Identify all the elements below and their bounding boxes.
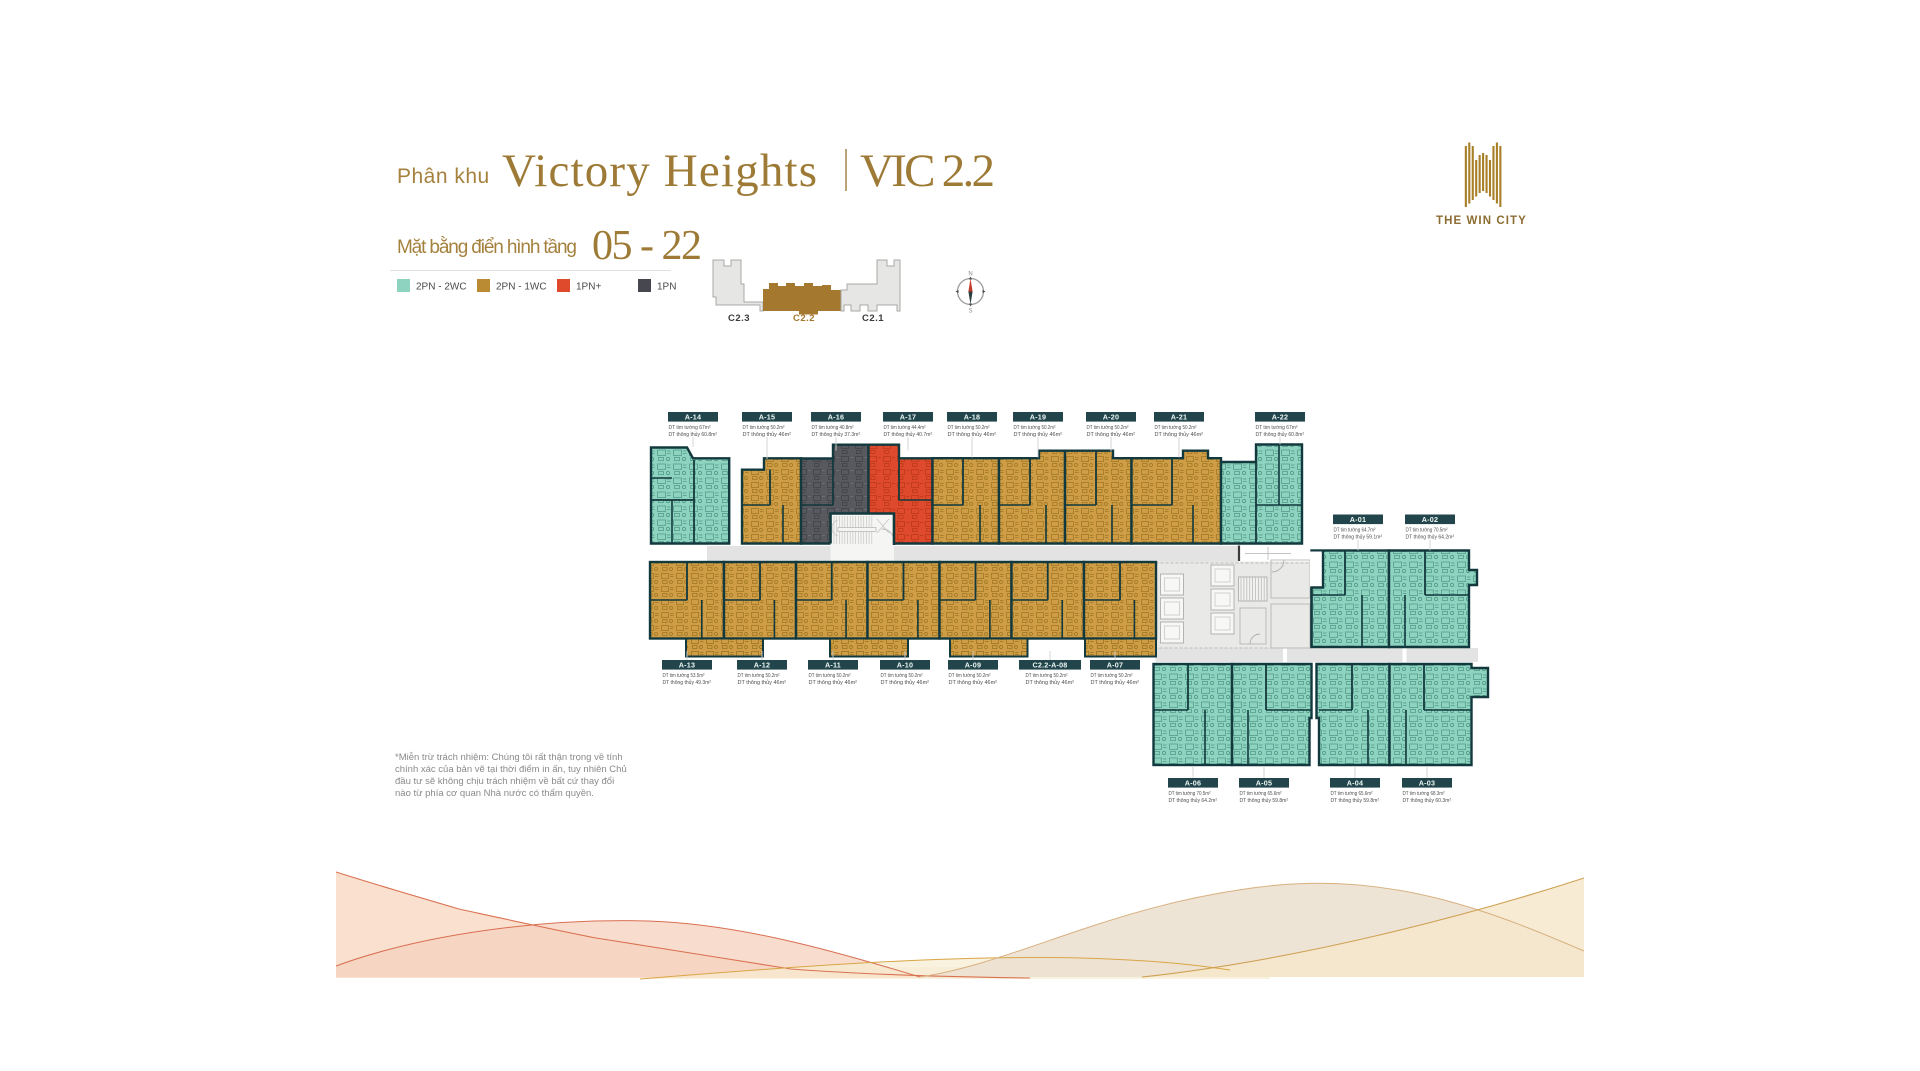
svg-text:Victory Heights: Victory Heights bbox=[502, 145, 817, 197]
svg-text:A-03: A-03 bbox=[1419, 778, 1435, 787]
svg-text:A-05: A-05 bbox=[1256, 778, 1272, 787]
svg-text:DT thông thủy 60.8m²: DT thông thủy 60.8m² bbox=[1256, 431, 1305, 438]
svg-text:DT tim tường 40.8m²: DT tim tường 40.8m² bbox=[812, 425, 854, 431]
svg-text:A-13: A-13 bbox=[679, 660, 695, 669]
svg-text:A-16: A-16 bbox=[828, 412, 844, 421]
svg-text:DT thông thủy 46m²: DT thông thủy 46m² bbox=[1026, 679, 1075, 686]
svg-text:A-11: A-11 bbox=[825, 660, 841, 669]
svg-text:2PN - 1WC: 2PN - 1WC bbox=[496, 282, 547, 293]
svg-text:DT thông thủy 46m²: DT thông thủy 46m² bbox=[1091, 679, 1140, 686]
svg-text:DT thông thủy 40.7m²: DT thông thủy 40.7m² bbox=[884, 431, 933, 438]
svg-text:DT thông thủy 46m²: DT thông thủy 46m² bbox=[1155, 431, 1204, 438]
svg-text:1PN+: 1PN+ bbox=[576, 282, 601, 293]
svg-text:DT thông thủy 59.8m²: DT thông thủy 59.8m² bbox=[1240, 797, 1289, 804]
svg-text:A-04: A-04 bbox=[1347, 778, 1363, 787]
svg-text:DT tim tường 50.2m²: DT tim tường 50.2m² bbox=[881, 673, 923, 679]
svg-text:DT thông thủy 46m²: DT thông thủy 46m² bbox=[881, 679, 930, 686]
svg-text:DT thông thủy 46m²: DT thông thủy 46m² bbox=[949, 679, 998, 686]
svg-text:DT tim tường 53.5m²: DT tim tường 53.5m² bbox=[663, 673, 705, 679]
svg-text:DT thông thủy 64.2m²: DT thông thủy 64.2m² bbox=[1406, 533, 1455, 540]
svg-text:VIC 2.2: VIC 2.2 bbox=[860, 145, 995, 197]
svg-text:DT thông thủy 46m²: DT thông thủy 46m² bbox=[743, 431, 792, 438]
svg-text:DT thông thủy 60.3m²: DT thông thủy 60.3m² bbox=[1403, 797, 1452, 804]
svg-text:DT tim tường 50.2m²: DT tim tường 50.2m² bbox=[948, 425, 990, 431]
svg-text:C2.3: C2.3 bbox=[728, 313, 750, 324]
svg-text:A-21: A-21 bbox=[1171, 412, 1187, 421]
svg-text:DT tim tường 70.5m²: DT tim tường 70.5m² bbox=[1406, 528, 1448, 534]
svg-text:chính xác của bản vẽ tại thời: chính xác của bản vẽ tại thời điểm in ấn… bbox=[395, 764, 627, 775]
svg-text:A-15: A-15 bbox=[759, 412, 775, 421]
svg-text:DT thông thủy 60.8m²: DT thông thủy 60.8m² bbox=[669, 431, 718, 438]
svg-text:A-09: A-09 bbox=[965, 660, 981, 669]
svg-text:DT tim tường 50.2m²: DT tim tường 50.2m² bbox=[949, 673, 991, 679]
svg-text:S: S bbox=[968, 309, 972, 315]
svg-text:DT thông thủy 49.3m²: DT thông thủy 49.3m² bbox=[663, 679, 712, 686]
svg-text:DT thông thủy 37.3m²: DT thông thủy 37.3m² bbox=[812, 431, 861, 438]
svg-text:*Miễn trừ trách nhiệm: Chúng t: *Miễn trừ trách nhiệm: Chúng tôi rất thậ… bbox=[395, 752, 623, 763]
svg-text:A-02: A-02 bbox=[1422, 515, 1438, 524]
svg-text:DT thông thủy 46m²: DT thông thủy 46m² bbox=[1014, 431, 1063, 438]
svg-text:DT tim tường 50.2m²: DT tim tường 50.2m² bbox=[809, 673, 851, 679]
svg-text:Phân khu: Phân khu bbox=[397, 165, 490, 188]
svg-text:DT tim tường 67m²: DT tim tường 67m² bbox=[669, 425, 711, 431]
svg-text:DT thông thủy 46m²: DT thông thủy 46m² bbox=[1087, 431, 1136, 438]
svg-text:DT tim tường 50.2m²: DT tim tường 50.2m² bbox=[1155, 425, 1197, 431]
svg-text:C2.2-A-08: C2.2-A-08 bbox=[1033, 660, 1068, 669]
svg-text:DT thông thủy 46m²: DT thông thủy 46m² bbox=[738, 679, 787, 686]
svg-text:DT tim tường 50.2m²: DT tim tường 50.2m² bbox=[1087, 425, 1129, 431]
svg-text:A-10: A-10 bbox=[897, 660, 913, 669]
svg-text:DT tim tường 65.6m²: DT tim tường 65.6m² bbox=[1240, 791, 1282, 797]
svg-text:DT tim tường 44.4m²: DT tim tường 44.4m² bbox=[884, 425, 926, 431]
svg-text:DT tim tường 65.6m²: DT tim tường 65.6m² bbox=[1331, 791, 1373, 797]
svg-text:DT tim tường 50.2m²: DT tim tường 50.2m² bbox=[1014, 425, 1056, 431]
svg-text:DT thông thủy 59.1m²: DT thông thủy 59.1m² bbox=[1334, 533, 1383, 540]
svg-text:DT thông thủy 64.2m²: DT thông thủy 64.2m² bbox=[1169, 797, 1218, 804]
svg-text:DT tim tường 70.5m²: DT tim tường 70.5m² bbox=[1169, 791, 1211, 797]
svg-text:A-19: A-19 bbox=[1030, 412, 1046, 421]
svg-text:đầu tư sẽ không chịu trách nhi: đầu tư sẽ không chịu trách nhiệm về bất … bbox=[395, 776, 614, 787]
svg-text:05 - 22: 05 - 22 bbox=[592, 223, 702, 269]
svg-text:A-22: A-22 bbox=[1272, 412, 1288, 421]
svg-text:A-14: A-14 bbox=[685, 412, 701, 421]
svg-text:DT thông thủy 59.8m²: DT thông thủy 59.8m² bbox=[1331, 797, 1380, 804]
svg-text:A-07: A-07 bbox=[1107, 660, 1123, 669]
svg-text:DT thông thủy 46m²: DT thông thủy 46m² bbox=[809, 679, 858, 686]
svg-text:THE WIN CITY: THE WIN CITY bbox=[1436, 215, 1528, 227]
svg-text:DT tim tường 67m²: DT tim tường 67m² bbox=[1256, 425, 1298, 431]
svg-text:DT thông thủy 46m²: DT thông thủy 46m² bbox=[948, 431, 997, 438]
svg-text:A-12: A-12 bbox=[754, 660, 770, 669]
svg-text:C2.1: C2.1 bbox=[862, 313, 884, 324]
svg-text:nào từ phía cơ quan Nhà nước c: nào từ phía cơ quan Nhà nước có thẩm quy… bbox=[395, 788, 594, 799]
svg-text:A-01: A-01 bbox=[1350, 515, 1366, 524]
svg-text:DT tim tường 68.3m²: DT tim tường 68.3m² bbox=[1403, 791, 1445, 797]
svg-text:2PN - 2WC: 2PN - 2WC bbox=[416, 282, 467, 293]
svg-text:DT tim tường 50.2m²: DT tim tường 50.2m² bbox=[1026, 673, 1068, 679]
svg-text:C2.2: C2.2 bbox=[793, 313, 815, 324]
svg-text:A-20: A-20 bbox=[1103, 412, 1119, 421]
svg-text:DT tim tường 50.2m²: DT tim tường 50.2m² bbox=[738, 673, 780, 679]
svg-text:DT tim tường 50.2m²: DT tim tường 50.2m² bbox=[1091, 673, 1133, 679]
svg-text:A-06: A-06 bbox=[1185, 778, 1201, 787]
svg-text:1PN: 1PN bbox=[657, 282, 676, 293]
svg-text:Mặt bằng điển hình tầng: Mặt bằng điển hình tầng bbox=[397, 236, 577, 258]
svg-text:DT tim tường 64.7m²: DT tim tường 64.7m² bbox=[1334, 528, 1376, 534]
svg-text:DT tim tường 50.2m²: DT tim tường 50.2m² bbox=[743, 425, 785, 431]
svg-text:A-17: A-17 bbox=[900, 412, 916, 421]
svg-text:A-18: A-18 bbox=[964, 412, 980, 421]
